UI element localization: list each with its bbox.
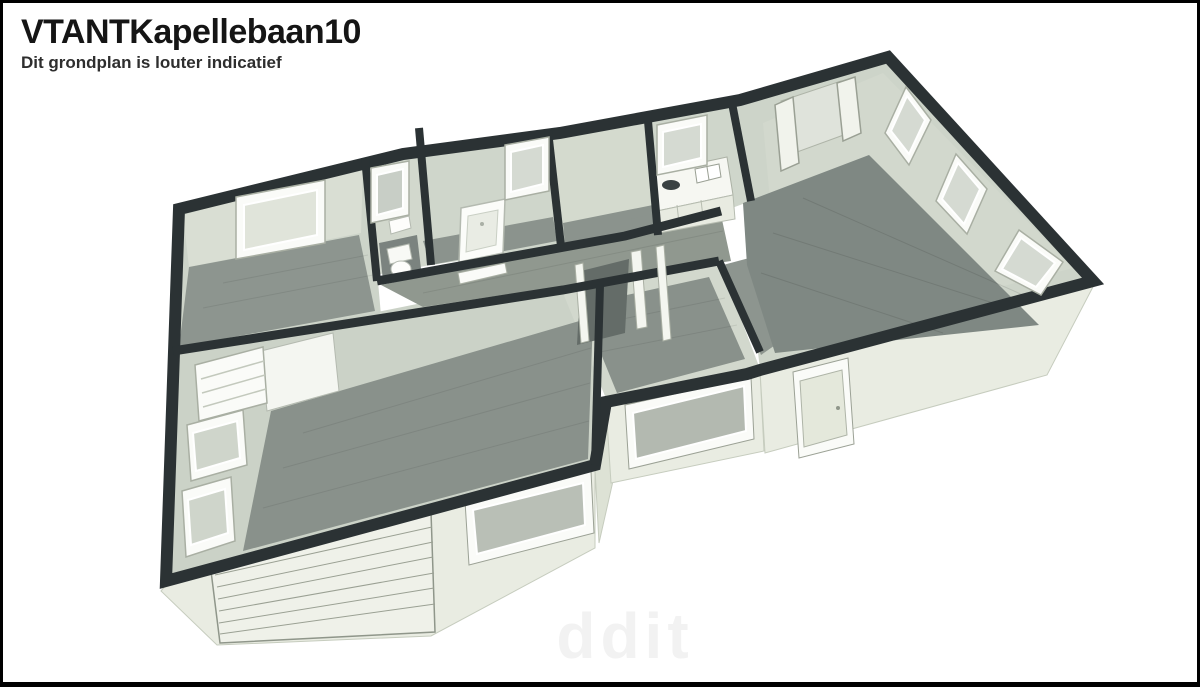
kitchen-window — [657, 115, 707, 175]
floorplan-figure: ddit — [3, 3, 1200, 687]
cooktop — [662, 180, 680, 190]
bathtub — [459, 199, 505, 262]
bathroom-window — [505, 137, 549, 200]
exterior-door — [793, 358, 854, 458]
screenshot-frame: VTANTKapellebaan10 Dit grondplan is lout… — [0, 0, 1200, 687]
watermark: ddit — [556, 600, 693, 672]
page-subtitle: Dit grondplan is louter indicatief — [21, 53, 361, 73]
page-title: VTANTKapellebaan10 — [21, 13, 361, 52]
title-block: VTANTKapellebaan10 Dit grondplan is lout… — [21, 13, 361, 73]
